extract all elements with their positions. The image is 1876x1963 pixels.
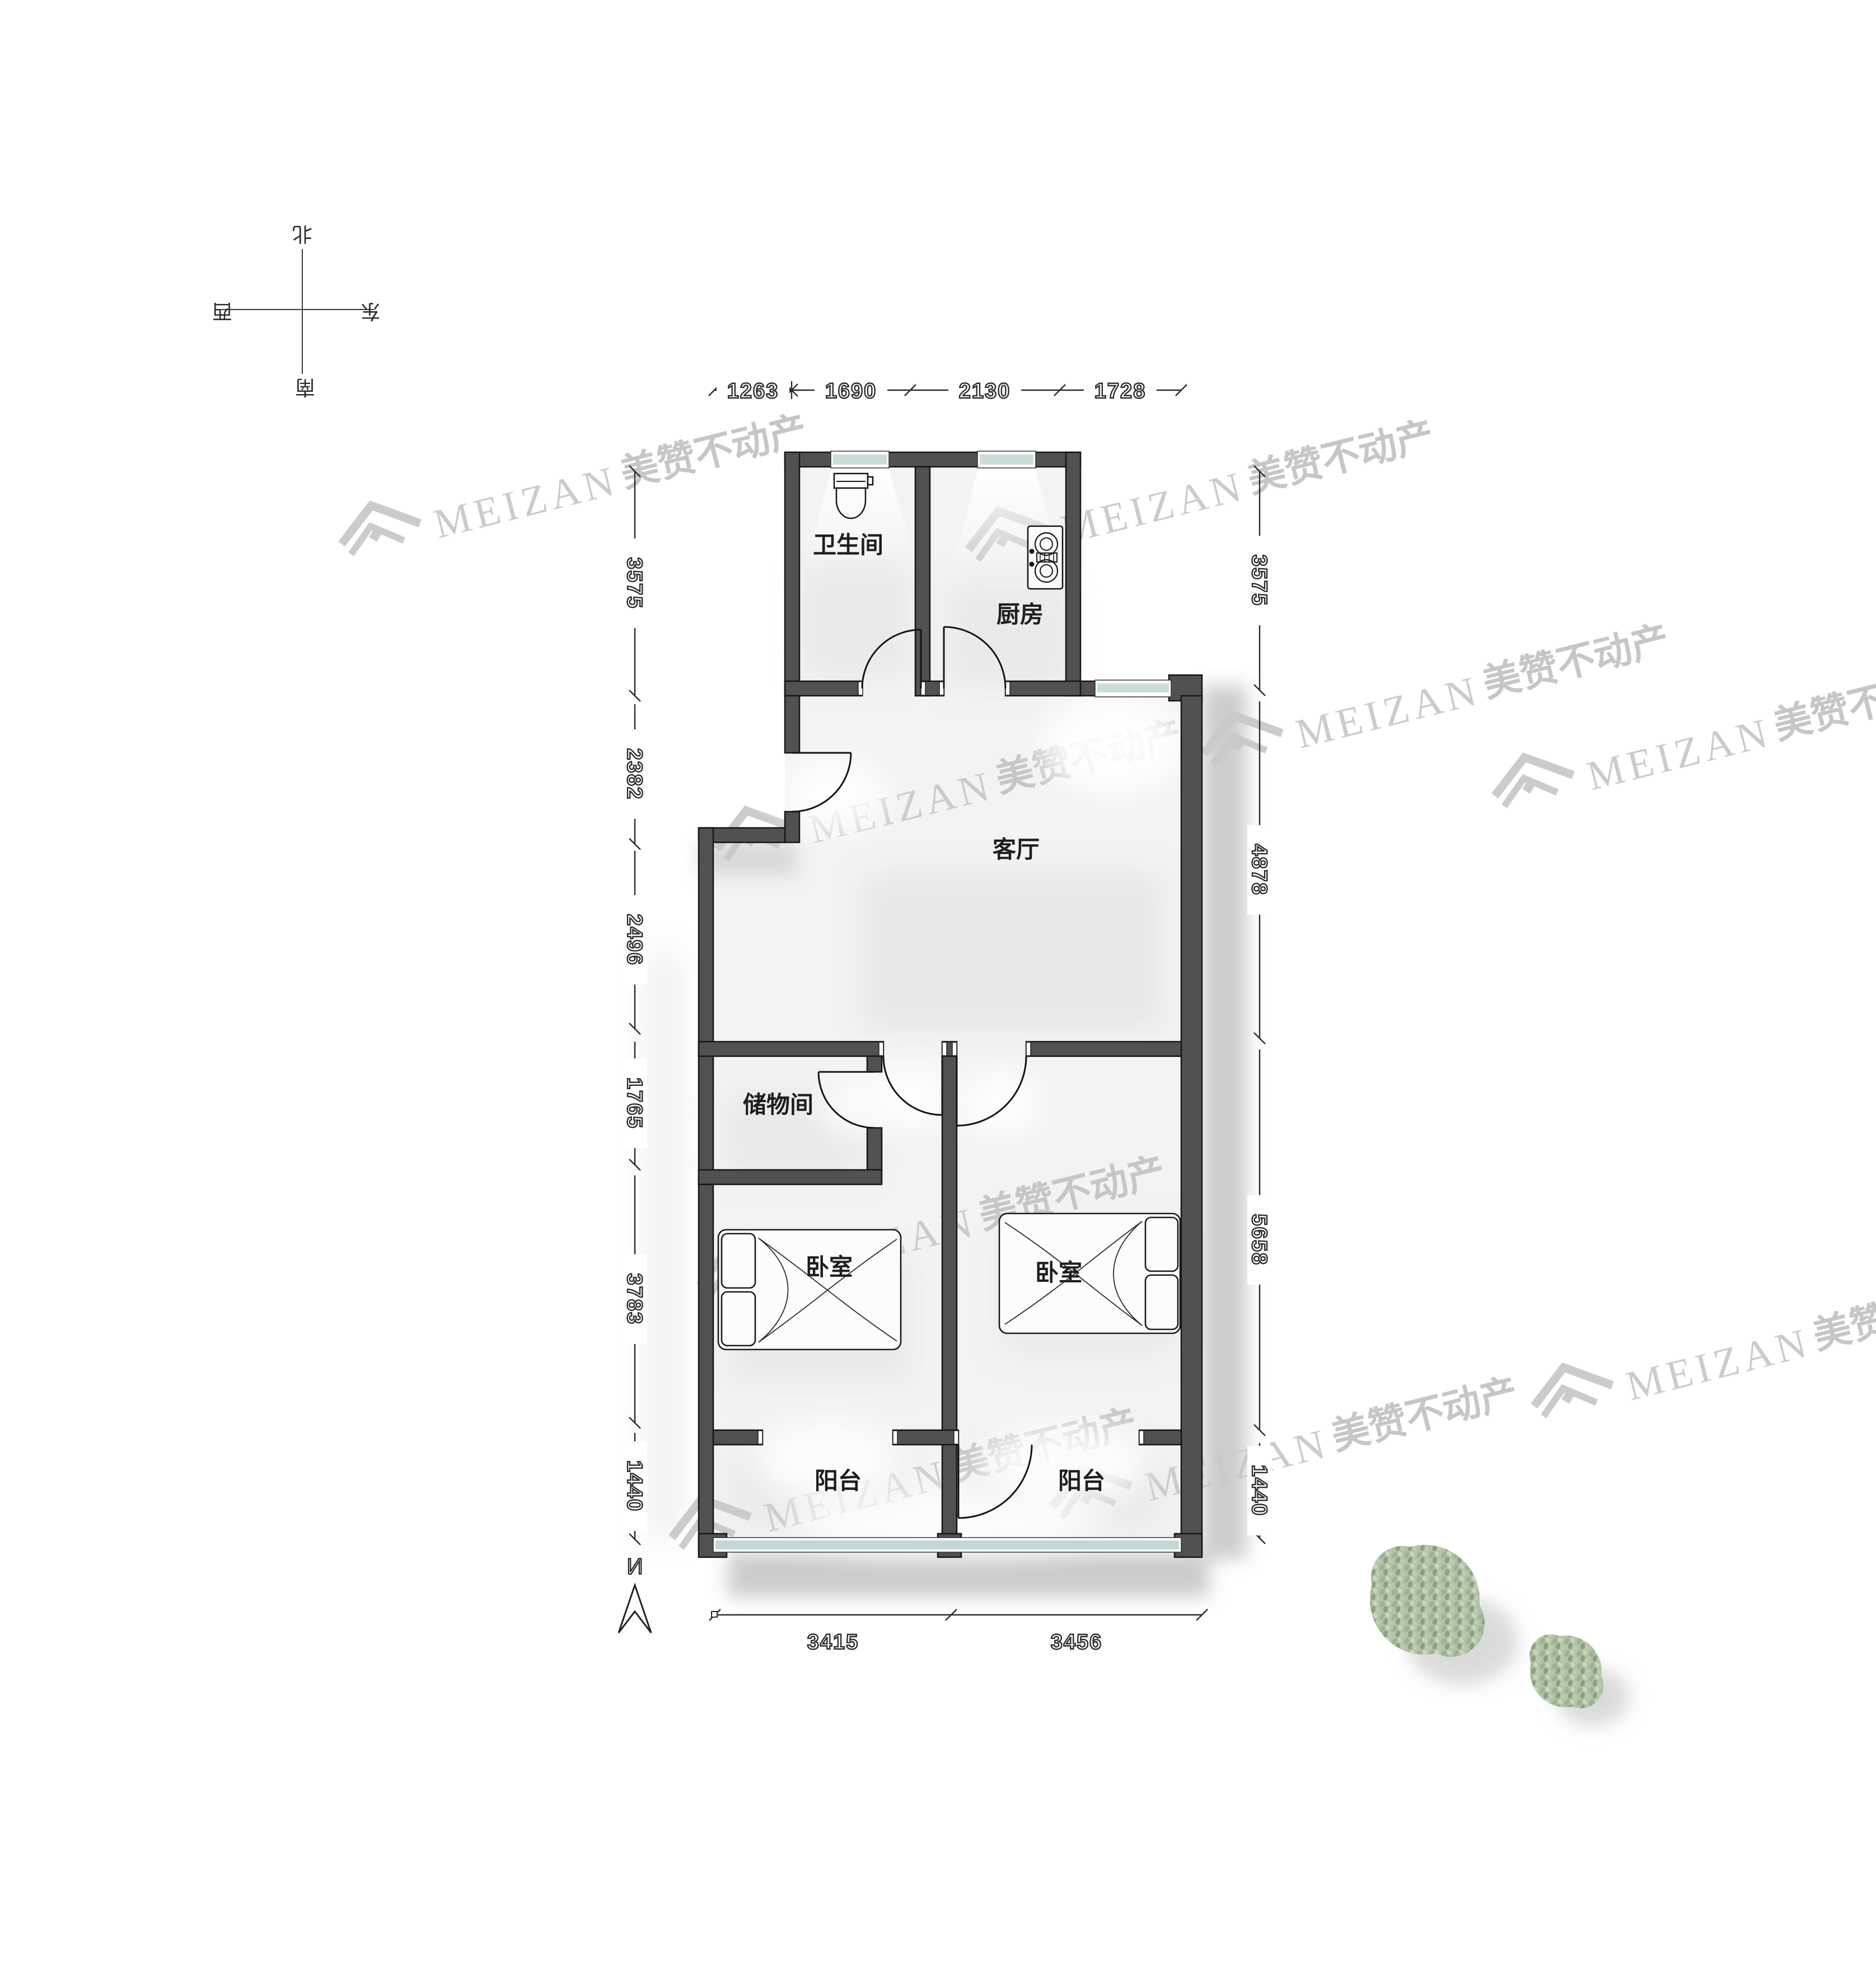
wall-top: [785, 452, 1080, 467]
label-bedroom-right: 卧室: [1035, 1259, 1082, 1286]
compass-west: 西: [212, 300, 232, 323]
stove: [1028, 526, 1063, 589]
compass-east: 东: [361, 300, 381, 323]
dim-bottom-2: 3456: [1051, 1631, 1103, 1654]
window-balcony-band: [713, 1538, 1181, 1552]
dimension-left: 3575 2382 2496 1765 3783 1440: [623, 466, 647, 1545]
dim-right-1: 3575: [1247, 555, 1271, 607]
label-kitchen: 厨房: [997, 601, 1044, 627]
north-indicator: N: [619, 1554, 651, 1633]
tree-large: [1370, 1545, 1518, 1685]
dim-left-6: 1440: [623, 1460, 646, 1512]
watermark: MEIZAN 美赞不动产: [1527, 1261, 1876, 1433]
wall-storage-right-b: [867, 1128, 882, 1170]
label-living: 客厅: [993, 836, 1040, 863]
watermark-en: MEIZAN: [1583, 710, 1776, 800]
compass: 北 南 西 东: [212, 223, 381, 399]
window-bathroom: [831, 451, 889, 468]
dim-left-4: 1765: [623, 1077, 646, 1130]
dim-right-4: 1440: [1247, 1465, 1271, 1517]
watermark-en: MEIZAN: [1622, 1320, 1816, 1410]
label-storage: 储物间: [743, 1091, 813, 1118]
watermark-zh: 美赞不动产: [1809, 1270, 1876, 1357]
watermark-zh: 美赞不动产: [1770, 660, 1876, 747]
dim-top-1: 1263: [727, 380, 779, 403]
wall-bedroom-row-c: [1026, 1042, 1181, 1056]
dim-bottom-1: 3415: [807, 1631, 859, 1654]
dim-right-3: 5658: [1247, 1214, 1271, 1266]
wall-left-mid-a: [785, 696, 799, 753]
dim-left-1: 3575: [623, 557, 646, 610]
watermark-en: MEIZAN: [1292, 668, 1485, 758]
watermark-zh: 美赞不动产: [1327, 1371, 1522, 1458]
compass-south: 南: [295, 376, 315, 399]
watermark-zh: 美赞不动产: [616, 408, 811, 495]
wall-bedroom-row-a: [699, 1042, 883, 1056]
dimension-right: 3575 4878 5658 1440: [1247, 466, 1272, 1544]
wall-bath-kitchen-divider: [915, 467, 930, 696]
wall-center-divider: [942, 1056, 957, 1542]
label-bathroom: 卫生间: [813, 532, 883, 558]
wall-left-top-block: [785, 452, 799, 696]
dim-left-3: 2496: [623, 914, 646, 966]
watermark-zh: 美赞不动产: [1243, 414, 1438, 501]
dim-top-3: 2130: [959, 380, 1011, 403]
watermark-zh: 美赞不动产: [1479, 618, 1673, 705]
floor-plan-page: MEIZAN 美赞不动产 MEIZAN 美赞不动产 MEIZAN 美赞不动产 M…: [0, 0, 1876, 1963]
tree-small: [1529, 1634, 1630, 1726]
wall-right-outer: [1181, 696, 1202, 1552]
wall-topblock-bottom-c: [1005, 681, 1080, 696]
dim-left-2: 2382: [623, 748, 646, 800]
label-bedroom-left: 卧室: [806, 1254, 853, 1280]
dimension-top: 1263 1690 2130 1728: [709, 378, 1187, 403]
wall-topblock-bottom-a: [785, 681, 862, 696]
dimension-bottom: 3415 3456: [709, 1609, 1208, 1654]
wall-storage-right-a: [867, 1056, 882, 1072]
floor-plan-svg: MEIZAN 美赞不动产 MEIZAN 美赞不动产 MEIZAN 美赞不动产 M…: [0, 0, 1876, 1963]
wall-left-mid-b: [785, 812, 799, 842]
label-balcony-left: 阳台: [815, 1468, 862, 1494]
dim-left-5: 3783: [623, 1273, 646, 1325]
wall-left-outer: [699, 828, 713, 1552]
wall-balcony-row-b: [893, 1430, 958, 1445]
label-balcony-right: 阳台: [1058, 1468, 1105, 1494]
bed-left: [718, 1230, 901, 1350]
dim-top-2: 1690: [825, 380, 877, 403]
window-living-right: [1095, 680, 1171, 697]
watermark-en: MEIZAN: [1056, 463, 1250, 554]
wall-balcony-row-a: [713, 1430, 762, 1445]
north-letter: N: [627, 1554, 643, 1579]
wall-storage-bottom: [699, 1170, 882, 1184]
bed-right: [999, 1214, 1180, 1333]
wall-balcony-row-c: [1139, 1430, 1181, 1445]
north-arrow-icon: [619, 1585, 651, 1633]
dim-top-4: 1728: [1094, 380, 1147, 403]
watermark: MEIZAN 美赞不动产: [334, 399, 813, 571]
compass-north: 北: [292, 223, 312, 246]
window-kitchen: [977, 451, 1036, 468]
dim-right-2: 4878: [1247, 844, 1271, 896]
watermark-en: MEIZAN: [429, 458, 623, 548]
wall-kitchen-right: [1066, 452, 1080, 696]
